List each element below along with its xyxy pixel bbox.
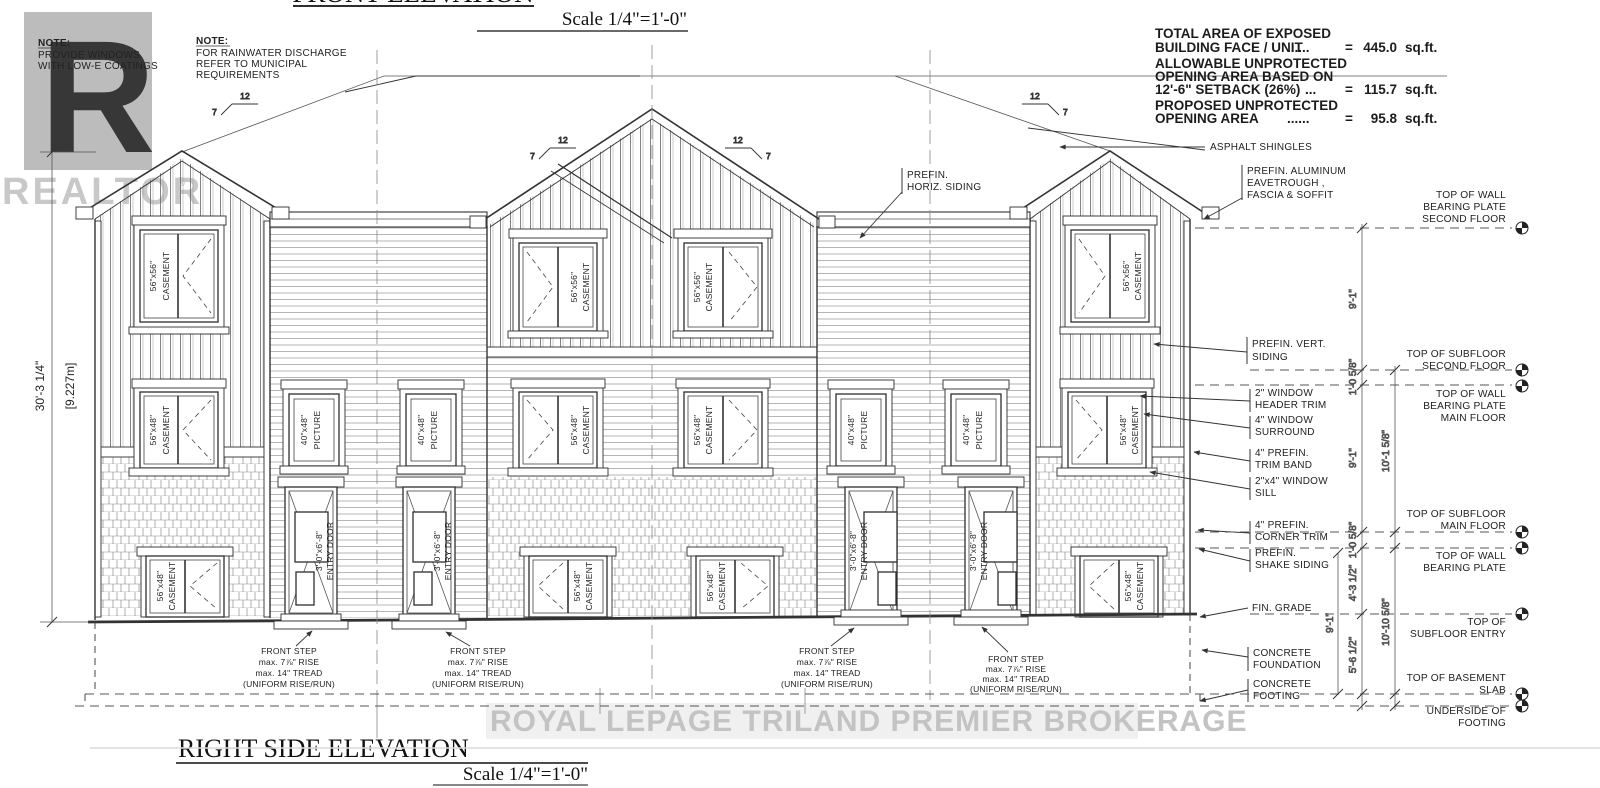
svg-text:10'-1 5/8": 10'-1 5/8" [1381,429,1392,472]
svg-text:7: 7 [1063,107,1068,117]
svg-text:max. 14" TREAD: max. 14" TREAD [793,668,860,678]
svg-text:SIDING: SIDING [1252,352,1288,363]
svg-text:FRONT STEP: FRONT STEP [450,646,506,656]
svg-text:NOTE:: NOTE: [196,36,228,47]
right-dimensions: 9'-1" 1'-0 5/8" 9'-1" 1'-0 5/8" 4'-3 1/2… [1325,223,1400,711]
svg-text:4" PREFIN.: 4" PREFIN. [1255,520,1309,531]
svg-text:3'-0"x6'-8": 3'-0"x6'-8" [314,531,324,571]
datum-subfloor-entry: TOP OF SUBFLOOR ENTRY [1410,617,1506,640]
svg-text:12'-6" SETBACK (26%): 12'-6" SETBACK (26%) [1155,82,1300,97]
svg-text:56"x48": 56"x48" [1123,571,1133,602]
svg-text:max. 14" TREAD: max. 14" TREAD [982,674,1049,684]
svg-text:4" PREFIN.: 4" PREFIN. [1255,448,1309,459]
callout-trim-band: 4" PREFIN. TRIM BAND [1194,448,1312,472]
svg-text:56"x48": 56"x48" [569,415,579,446]
svg-text:NOTE:: NOTE: [38,38,70,49]
svg-text:12: 12 [733,135,743,145]
svg-text:max. 7⅞" RISE: max. 7⅞" RISE [797,657,858,667]
svg-text:12: 12 [558,135,568,145]
svg-text:FASCIA & SOFFIT: FASCIA & SOFFIT [1247,190,1334,201]
svg-text:12: 12 [240,91,250,101]
datum-subfloor-2f: TOP OF SUBFLOOR SECOND FLOOR [1407,349,1506,372]
svg-text:BEARING PLATE: BEARING PLATE [1423,401,1506,412]
svg-text:CASEMENT: CASEMENT [1135,562,1145,611]
svg-text:max. 14" TREAD: max. 14" TREAD [255,668,322,678]
building-facade [76,109,1219,620]
datum-wall-plate: TOP OF WALL BEARING PLATE [1423,551,1506,574]
datum-wall-plate-2f: TOP OF WALL BEARING PLATE SECOND FLOOR [1422,190,1506,225]
datum-underside-footing: UNDERSIDE OF FOOTING [1427,706,1506,729]
svg-text:3'-0"x6'-8": 3'-0"x6'-8" [848,531,858,571]
front-step-note: FRONT STEP max. 7⅞" RISE max. 14" TREAD … [970,627,1062,694]
svg-text:BEARING PLATE: BEARING PLATE [1423,202,1506,213]
svg-text:PREFIN. ALUMINUM: PREFIN. ALUMINUM [1247,166,1346,177]
svg-text:UNDERSIDE OF: UNDERSIDE OF [1427,706,1506,717]
window-casement-56x48: 56"x48" CASEMENT [673,379,773,476]
window-casement-56x48: 56"x48" CASEMENT [1071,547,1167,617]
svg-text:FOOTING: FOOTING [1253,691,1300,702]
elevation-drawing: R REALTOR ® ROYAL LEPAGE TRILAND PREMIER… [0,0,1600,788]
svg-text:4'-3 1/2": 4'-3 1/2" [1348,564,1359,601]
window-casement-56x56: 56"x56" CASEMENT [508,229,608,338]
svg-text:sq.ft.: sq.ft. [1405,40,1437,55]
svg-text:56"x56": 56"x56" [692,272,702,303]
svg-text:SUBFLOOR ENTRY: SUBFLOOR ENTRY [1410,629,1506,640]
entry-door: 3'-0"x6'-8" ENTRY DOOR [958,477,1024,617]
svg-text:PREFIN.: PREFIN. [907,170,948,181]
svg-text:CASEMENT: CASEMENT [581,263,591,312]
svg-text:TOP OF WALL: TOP OF WALL [1436,190,1506,201]
side-elevation-scale: Scale 1/4"=1'-0" [463,764,588,785]
corner-trim [1030,221,1036,615]
window-casement-56x48: 56"x48" CASEMENT [129,379,229,476]
svg-text:7: 7 [766,151,771,161]
window-picture-40x48: 40"x48" PICTURE [280,380,348,474]
svg-text:CORNER TRIM: CORNER TRIM [1255,532,1328,543]
window-casement-56x48: 56"x48" CASEMENT [1057,379,1157,476]
svg-text:56"x48": 56"x48" [572,571,582,602]
svg-text:40"x48": 40"x48" [416,415,426,446]
front-step-note: FRONT STEP max. 7⅞" RISE max. 14" TREAD … [781,628,873,689]
svg-text:2" WINDOW: 2" WINDOW [1255,388,1313,399]
svg-text:[9.227m]: [9.227m] [63,363,77,410]
svg-text:CASEMENT: CASEMENT [1130,406,1140,455]
svg-text:40"x48": 40"x48" [299,415,309,446]
svg-text:CASEMENT: CASEMENT [161,406,171,455]
svg-text:56"x56": 56"x56" [148,261,158,292]
roof-pitch-marker: 12 7 [725,135,771,161]
svg-text:OPENING AREA: OPENING AREA [1155,111,1259,126]
corner-trim [1184,221,1190,615]
svg-text:CONCRETE: CONCRETE [1253,648,1311,659]
svg-text:WITH LOW-E COATINGS: WITH LOW-E COATINGS [38,61,158,72]
svg-text:TOP OF WALL: TOP OF WALL [1436,389,1506,400]
svg-text:CASEMENT: CASEMENT [581,406,591,455]
svg-text:7: 7 [530,151,535,161]
svg-text:SHAKE SIDING: SHAKE SIDING [1255,560,1329,571]
svg-text:PICTURE: PICTURE [429,411,439,450]
svg-text:CASEMENT: CASEMENT [584,562,594,611]
svg-text:......: ...... [1287,40,1310,55]
datum-subfloor-main: TOP OF SUBFLOOR MAIN FLOOR [1407,509,1506,532]
rainwater-note-leader [345,76,640,92]
svg-text:FRONT STEP: FRONT STEP [988,654,1044,664]
front-step [834,610,908,625]
entry-door: 3'-0"x6'-8" ENTRY DOOR [838,477,904,617]
svg-text:1'-0 5/8": 1'-0 5/8" [1348,358,1359,395]
front-step [954,610,1028,625]
svg-text:CASEMENT: CASEMENT [167,562,177,611]
svg-text:3'-0"x6'-8": 3'-0"x6'-8" [968,531,978,571]
svg-text:5'-6 1/2": 5'-6 1/2" [1348,636,1359,673]
svg-text:sq.ft.: sq.ft. [1405,82,1437,97]
svg-text:TOP OF: TOP OF [1467,617,1506,628]
svg-text:56"x56": 56"x56" [1121,261,1131,292]
roof-pitch-marker: 12 7 [1022,91,1068,117]
svg-text:(UNIFORM RISE/RUN): (UNIFORM RISE/RUN) [970,684,1062,694]
svg-text:56"x48": 56"x48" [148,415,158,446]
window-casement-56x48: 56"x48" CASEMENT [137,547,233,617]
svg-text:56"x48": 56"x48" [1118,415,1128,446]
svg-text:40"x48": 40"x48" [961,415,971,446]
svg-text:MAIN FLOOR: MAIN FLOOR [1441,521,1506,532]
svg-text:SILL: SILL [1255,488,1277,499]
svg-text:BUILDING FACE / UNIT: BUILDING FACE / UNIT [1155,40,1304,55]
svg-text:PREFIN.: PREFIN. [1255,548,1296,559]
svg-text:MAIN FLOOR: MAIN FLOOR [1441,413,1506,424]
svg-text:FRONT STEP: FRONT STEP [261,646,317,656]
svg-text:CASEMENT: CASEMENT [704,263,714,312]
front-step-note: FRONT STEP max. 7⅞" RISE max. 14" TREAD … [243,631,335,689]
svg-text:max. 7⅞" RISE: max. 7⅞" RISE [986,664,1047,674]
svg-text:(UNIFORM RISE/RUN): (UNIFORM RISE/RUN) [243,679,335,689]
svg-text:CASEMENT: CASEMENT [1133,252,1143,301]
svg-text:56"x48": 56"x48" [155,571,165,602]
svg-text:ASPHALT SHINGLES: ASPHALT SHINGLES [1210,142,1312,153]
svg-text:TOTAL AREA OF EXPOSED: TOTAL AREA OF EXPOSED [1155,26,1331,41]
svg-text:40"x48": 40"x48" [846,415,856,446]
window-casement-56x48: 56"x48" CASEMENT [687,547,783,617]
svg-text:(UNIFORM RISE/RUN): (UNIFORM RISE/RUN) [432,679,524,689]
svg-text:56"x48": 56"x48" [705,571,715,602]
svg-text:EAVETROUGH ,: EAVETROUGH , [1247,178,1325,189]
svg-text:12: 12 [1030,91,1040,101]
svg-text:SECOND FLOOR: SECOND FLOOR [1422,214,1506,225]
datum-wall-plate-main: TOP OF WALL BEARING PLATE MAIN FLOOR [1423,389,1506,424]
svg-text:PICTURE: PICTURE [974,411,984,450]
window-casement-56x56: 56"x56" CASEMENT [1060,216,1160,334]
svg-text:(UNIFORM RISE/RUN): (UNIFORM RISE/RUN) [781,679,873,689]
entry-door: 3'-0"x6'-8" ENTRY DOOR [396,477,462,617]
svg-text:2"x4" WINDOW: 2"x4" WINDOW [1255,476,1328,487]
note-rainwater: NOTE: FOR RAINWATER DISCHARGE REFER TO M… [196,36,347,81]
svg-text:......: ...... [1287,111,1310,126]
svg-text:CONCRETE: CONCRETE [1253,679,1311,690]
svg-text:BEARING PLATE: BEARING PLATE [1423,563,1506,574]
svg-text:TOP OF WALL: TOP OF WALL [1436,551,1506,562]
svg-text:=: = [1345,111,1353,126]
entry-door: 3'-0"x6'-8" ENTRY DOOR [278,477,344,617]
corner-trim [95,221,101,617]
window-casement-56x48: 56"x48" CASEMENT [508,379,608,476]
svg-text:max. 7⅞" RISE: max. 7⅞" RISE [448,657,509,667]
window-picture-40x48: 40"x48" PICTURE [827,380,895,474]
datum-basement-slab: TOP OF BASEMENT SLAB [1407,673,1506,696]
spec-value-allowable-opening: 115.7 [1364,82,1397,97]
svg-text:FOR RAINWATER DISCHARGE: FOR RAINWATER DISCHARGE [196,48,347,59]
svg-text:HEADER TRIM: HEADER TRIM [1255,400,1326,411]
svg-text:30'-3 1/4": 30'-3 1/4" [33,361,47,412]
roof-pitch-marker: 12 7 [530,135,576,161]
svg-text:HORIZ. SIDING: HORIZ. SIDING [907,182,981,193]
datum-marker [1516,222,1528,712]
drawing-sheet: R REALTOR ® ROYAL LEPAGE TRILAND PREMIER… [0,0,1600,788]
brokerage-watermark-text: ROYAL LEPAGE TRILAND PREMIER BROKERAGE [490,705,1248,738]
svg-text:=: = [1345,82,1353,97]
callout-shake-siding: PREFIN. SHAKE SIDING [1199,548,1329,572]
svg-text:PICTURE: PICTURE [859,411,869,450]
svg-text:PROVIDE WINDOWS: PROVIDE WINDOWS [38,50,140,61]
svg-text:SECOND FLOOR: SECOND FLOOR [1422,361,1506,372]
front-elevation-scale: Scale 1/4"=1'-0" [562,9,687,30]
svg-text:9'-1": 9'-1" [1325,613,1336,633]
svg-text:9'-1": 9'-1" [1348,289,1359,309]
side-elevation-titleblock: RIGHT SIDE ELEVATION Scale 1/4"=1'-0" [176,734,588,785]
svg-text:ENTRY DOOR: ENTRY DOOR [325,522,335,580]
svg-text:FIN. GRADE: FIN. GRADE [1252,603,1312,614]
svg-text:9'-1": 9'-1" [1348,448,1359,468]
roof-pitch-marker: 12 7 [212,91,258,117]
svg-text:FRONT STEP: FRONT STEP [799,646,855,656]
svg-text:ENTRY DOOR: ENTRY DOOR [979,522,989,580]
svg-text:max. 7⅞" RISE: max. 7⅞" RISE [259,657,320,667]
svg-text:TOP OF SUBFLOOR: TOP OF SUBFLOOR [1407,349,1506,360]
callout-foundation: CONCRETE FOUNDATION [1202,647,1321,671]
datum-labels: TOP OF WALL BEARING PLATE SECOND FLOOR T… [1407,190,1528,729]
callout-footing: CONCRETE FOOTING [1200,679,1311,702]
svg-text:CASEMENT: CASEMENT [717,562,727,611]
svg-text:PREFIN. VERT.: PREFIN. VERT. [1252,339,1326,350]
spec-value-building-face: 445.0 [1363,40,1397,55]
svg-text:CASEMENT: CASEMENT [704,406,714,455]
svg-text:REFER TO MUNICIPAL: REFER TO MUNICIPAL [196,59,307,70]
svg-text:4" WINDOW: 4" WINDOW [1255,415,1313,426]
svg-text:max. 14" TREAD: max. 14" TREAD [444,668,511,678]
svg-text:SURROUND: SURROUND [1255,427,1315,438]
svg-text:...: ... [1305,82,1316,97]
window-casement-56x48: 56"x48" CASEMENT [520,547,616,617]
callout-asphalt-shingles: ASPHALT SHINGLES [1028,128,1312,153]
front-step [392,614,466,629]
svg-text:FOOTING: FOOTING [1458,718,1506,729]
window-casement-56x56: 56"x56" CASEMENT [129,216,229,334]
callout-eavetrough: PREFIN. ALUMINUM EAVETROUGH , FASCIA & S… [1204,165,1346,219]
front-step-note: FRONT STEP max. 7⅞" RISE max. 14" TREAD … [432,632,524,689]
realtor-logo-letter: R [40,7,156,186]
svg-text:SLAB: SLAB [1479,685,1506,696]
svg-text:TOP OF SUBFLOOR: TOP OF SUBFLOOR [1407,509,1506,520]
front-step [274,614,348,629]
front-elevation-titleblock: FRONT ELEVATION Scale 1/4"=1'-0" [292,0,688,31]
svg-text:ENTRY DOOR: ENTRY DOOR [443,522,453,580]
callout-fin-grade: FIN. GRADE [1200,603,1312,617]
corner-trim [264,221,270,617]
svg-text:PICTURE: PICTURE [312,411,322,450]
svg-text:=: = [1345,40,1353,55]
svg-text:sq.ft.: sq.ft. [1405,111,1437,126]
svg-text:10'-10 5/8": 10'-10 5/8" [1381,598,1392,646]
svg-text:3'-0"x6'-8": 3'-0"x6'-8" [432,531,442,571]
svg-text:FOUNDATION: FOUNDATION [1253,660,1321,671]
svg-text:1'-0 5/8": 1'-0 5/8" [1348,521,1359,558]
svg-text:56"x48": 56"x48" [692,415,702,446]
spec-value-proposed-opening: 95.8 [1371,111,1398,126]
window-picture-40x48: 40"x48" PICTURE [942,380,1010,474]
window-picture-40x48: 40"x48" PICTURE [397,380,465,474]
window-casement-56x56: 56"x56" CASEMENT [673,229,773,338]
svg-text:CASEMENT: CASEMENT [161,252,171,301]
svg-text:56"x56": 56"x56" [569,272,579,303]
svg-text:TOP OF BASEMENT: TOP OF BASEMENT [1407,673,1506,684]
svg-text:TRIM BAND: TRIM BAND [1255,460,1312,471]
svg-text:ENTRY DOOR: ENTRY DOOR [859,522,869,580]
svg-text:REQUIREMENTS: REQUIREMENTS [196,70,280,81]
svg-text:7: 7 [212,107,217,117]
